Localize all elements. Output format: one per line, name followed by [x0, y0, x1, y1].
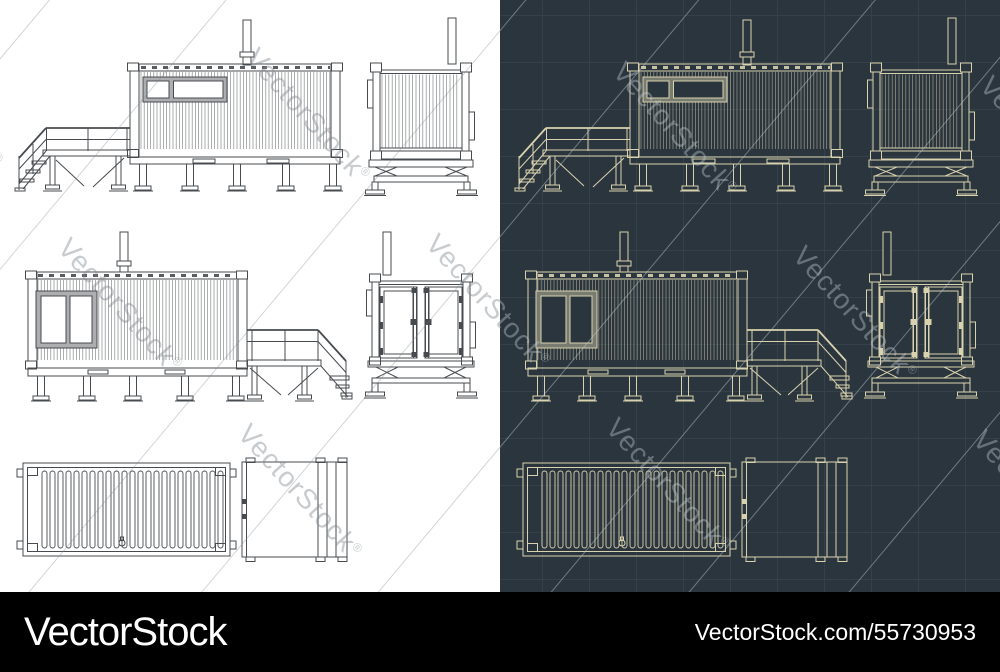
drawings-dark-theme [515, 18, 978, 562]
footer-bar: VectorStock VectorStock.com/55730953 [0, 592, 1000, 672]
blueprint-artwork: VectorStock®VectorStock®VectorStock®Vect… [0, 0, 1000, 592]
blueprint-drawings [0, 0, 1000, 592]
site-credit-url: VectorStock.com/55730953 [695, 619, 976, 646]
stock-image-canvas: VectorStock®VectorStock®VectorStock®Vect… [0, 0, 1000, 672]
vectorstock-logo: VectorStock [24, 610, 226, 655]
drawings-light-theme [15, 18, 478, 562]
